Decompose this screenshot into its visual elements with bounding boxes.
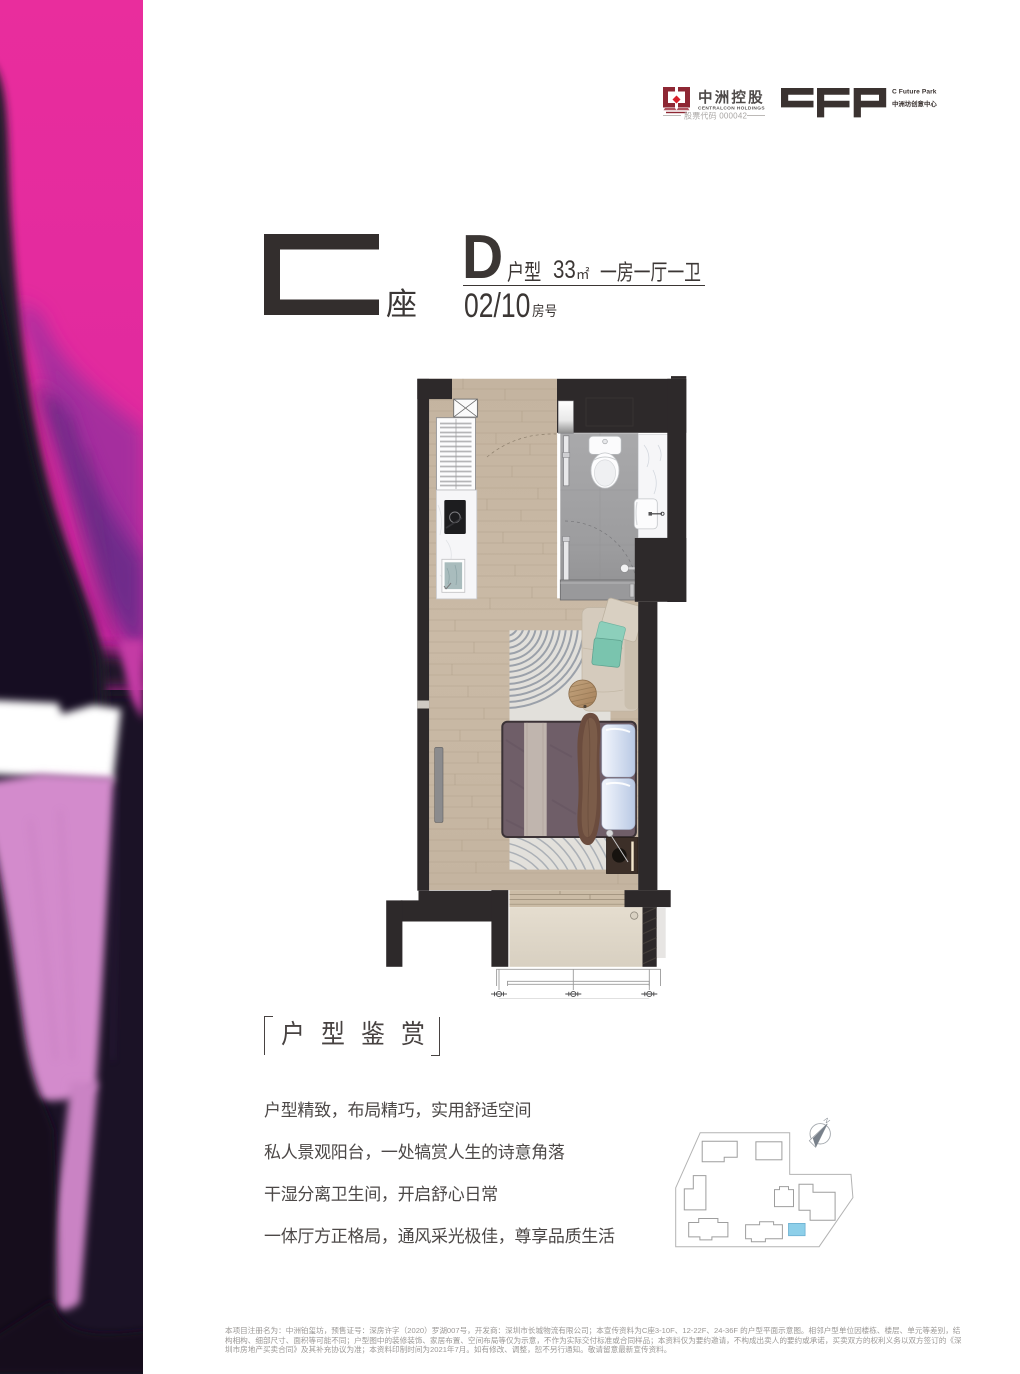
svg-text:座: 座	[386, 287, 417, 322]
svg-text:C Future Park: C Future Park	[892, 88, 937, 95]
svg-text:股票代码 000042: 股票代码 000042	[684, 111, 747, 121]
svg-text:中洲坊创意中心: 中洲坊创意中心	[892, 99, 937, 108]
svg-text:中洲控股: 中洲控股	[698, 89, 765, 107]
